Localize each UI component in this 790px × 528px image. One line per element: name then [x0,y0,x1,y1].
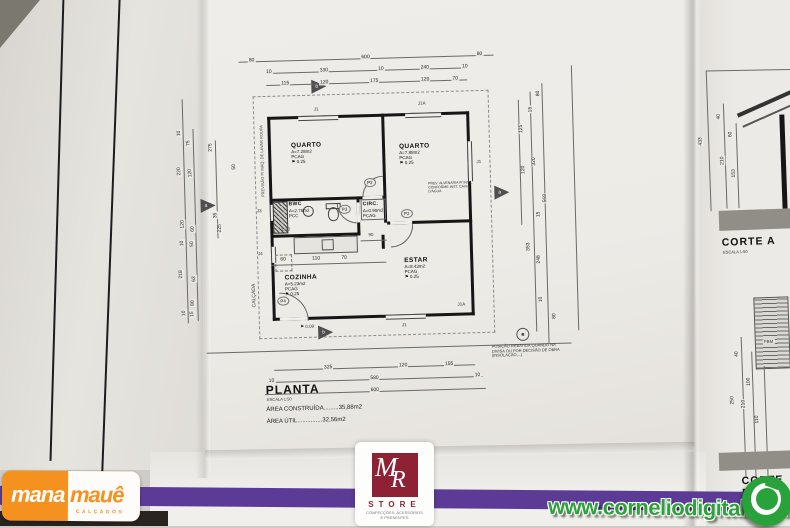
dim-label: 210 [720,155,725,166]
paper-fold-left [196,0,210,478]
dim-label: 15 [528,106,533,114]
dim-label: 80 [248,58,256,63]
window-tag: J3 [257,208,262,213]
circ-width-dim: 90 [368,232,373,237]
dim-label: 125 [519,124,524,134]
dim-label: 10 [377,67,385,72]
sidewalk-label: CALÇADA [251,284,258,308]
dim-label: 70 [340,256,348,261]
dim-label: 115 [280,81,290,86]
kitchen-sink [322,239,334,250]
mr-store-subtitle: CONFECÇÕES, ACESSÓRIOS E PRESENTES [355,511,434,520]
dim-label: 10 [265,70,273,75]
dim-label: 60 [728,131,733,139]
dim-label: 15 [190,310,195,318]
cornelio-swirl-icon [742,476,790,526]
dim-label: 275 [208,142,213,152]
room-label-circ: CIRC. A=0.90m2 PCAG [361,199,386,221]
dim-label: 110 [311,256,321,261]
dim-label: 10 [539,296,544,304]
window-tag: J1A [418,101,426,106]
dim-label: 100 [747,376,752,387]
mr-store-logo: M R STORE CONFECÇÕES, ACESSÓRIOS E PRESE… [355,442,434,526]
wall [381,235,384,249]
room-label-quarto-1: QUARTO A=7.28m2 PCAG ⚑ 0.25 [291,141,322,165]
dim-label: 50 [232,163,237,171]
dim-label: 63 [192,275,197,283]
manamaue-text-orange: mauê [70,482,124,508]
dim-label: 10 [461,64,469,69]
window [467,141,473,181]
plan-scale: ESCALA 1:50 [267,396,292,402]
dim-label: 600 [370,388,380,393]
lot-boundary-line [571,65,579,330]
dim-label: 568 [543,193,548,203]
dim-label: 240 [420,65,430,70]
dim-label: 75 [186,139,191,147]
floor-plan: QUARTO A=7.28m2 PCAG ⚑ 0.25 QUARTO A=7.8… [228,27,720,472]
dim-label: 120 [180,219,185,229]
manamaue-subtitle: CALÇADOS [76,509,124,515]
window [405,112,441,118]
door-tag-p2: P2 [401,209,413,218]
manamaue-logo: mana mauê CALÇADOS [2,471,140,522]
door-tag-p3: P3 [339,205,351,214]
dim-label: 353 [526,241,531,251]
dim-label: 60 [279,257,287,262]
photo-of-floor-plan: { "plan": { "title": "PLANTA", "scale": … [0,0,790,526]
dim-label: 10 [180,239,185,247]
window-tag: J1 [314,106,319,111]
dim-label: 210 [741,399,746,410]
dim-label: 50 [190,240,195,248]
dim-label: 10 [182,309,187,317]
dim-label: 110 [755,414,760,424]
dim-label: 10 [177,130,182,138]
dim-label: 80 [191,299,196,307]
dim-label: 60 [191,225,196,233]
dim-label: 580 [369,376,379,381]
section-a-drawing: CORTE A ESCALA 1:50 4334060210153 [691,56,790,271]
bwc-height-note: 2.30 [281,226,290,231]
dim-label: 153 [732,168,737,179]
sun-orientation-icon [516,328,529,341]
roof-slope [737,89,790,118]
dim-label: 40 [735,350,740,358]
room-label-cozinha: COZINHA A=5.23m2 PCAG ⚑ 0.25 [285,274,318,298]
roof-tile-hatch [753,296,790,369]
section-a-title: CORTE A [722,235,776,249]
dim-label: 330 [319,68,329,73]
dim-label: 80 [536,89,541,97]
area-net: ÁREA ÚTIL...............32,56m2 [267,417,346,425]
section-wall [779,115,787,209]
dim-label: 175 [369,79,379,84]
section-arrow-a [200,198,215,212]
wall-annotation: PREV. ALVENARIA P/ INST. CONFORME INST. … [428,181,478,194]
dim-label: 120 [319,80,329,85]
dim-label: 80 [476,52,484,57]
mr-store-text: STORE [355,500,434,509]
dim-label: 320 [532,156,537,166]
window-tag: J1 [402,322,407,327]
window-tag: J1 [476,159,481,164]
room-label-quarto-2: QUARTO A=7.88m2 PCAG ⚑ 0.25 [399,142,430,166]
plan-note: POSIÇÃO REBATIDA QUANDO NA DIVISA OU POR… [492,343,572,359]
dim-label: 40 [717,113,722,121]
window-tag: J1A [457,301,465,306]
dim-label: 250 [730,395,735,406]
dim-label: 220 [177,166,182,176]
dim-label: 433 [699,136,704,147]
section-arrow-b [318,325,333,339]
dim-label: 15 [536,211,541,219]
ground-bar [719,450,790,471]
ground-bar [719,208,790,231]
room-label-bwc: BWC A=2.76m2 PCC [289,201,310,219]
outside-level: ⚑ 0.09 [300,324,314,329]
dim-label: 600 [360,55,370,60]
window-tag: J4 [258,251,263,256]
dim-label: 10 [474,373,482,378]
mr-monogram-square: M R [372,453,418,497]
dim-label: 218 [179,269,184,279]
door-tag-p2: P2 [364,178,376,187]
dim-label: 120 [188,168,193,178]
dim-label: 120 [398,363,408,368]
door-tag-p4: P4 [277,296,289,305]
room-label-estar: ESTAR A=8.43m2 PCAG ⚑ 0.25 [404,257,428,281]
dim-label: 325 [323,365,333,370]
section-arrow-a [494,185,509,199]
area-built: ÁREA CONSTRUÍDA.........35,88m2 [266,404,362,413]
manamaue-text-white: mana [11,482,65,508]
dim-label: 10 [268,379,276,384]
dim-label: 35 [213,212,218,220]
dim-label: 248 [537,254,542,264]
dim-label: 120 [521,165,526,175]
dim-label: 155 [444,362,454,367]
plan-title: PLANTA [266,382,320,397]
dim-label: 120 [420,77,430,82]
dim-label: 80 [552,312,557,320]
dim-label: 70 [451,77,459,82]
dim-label: 225 [218,223,223,233]
